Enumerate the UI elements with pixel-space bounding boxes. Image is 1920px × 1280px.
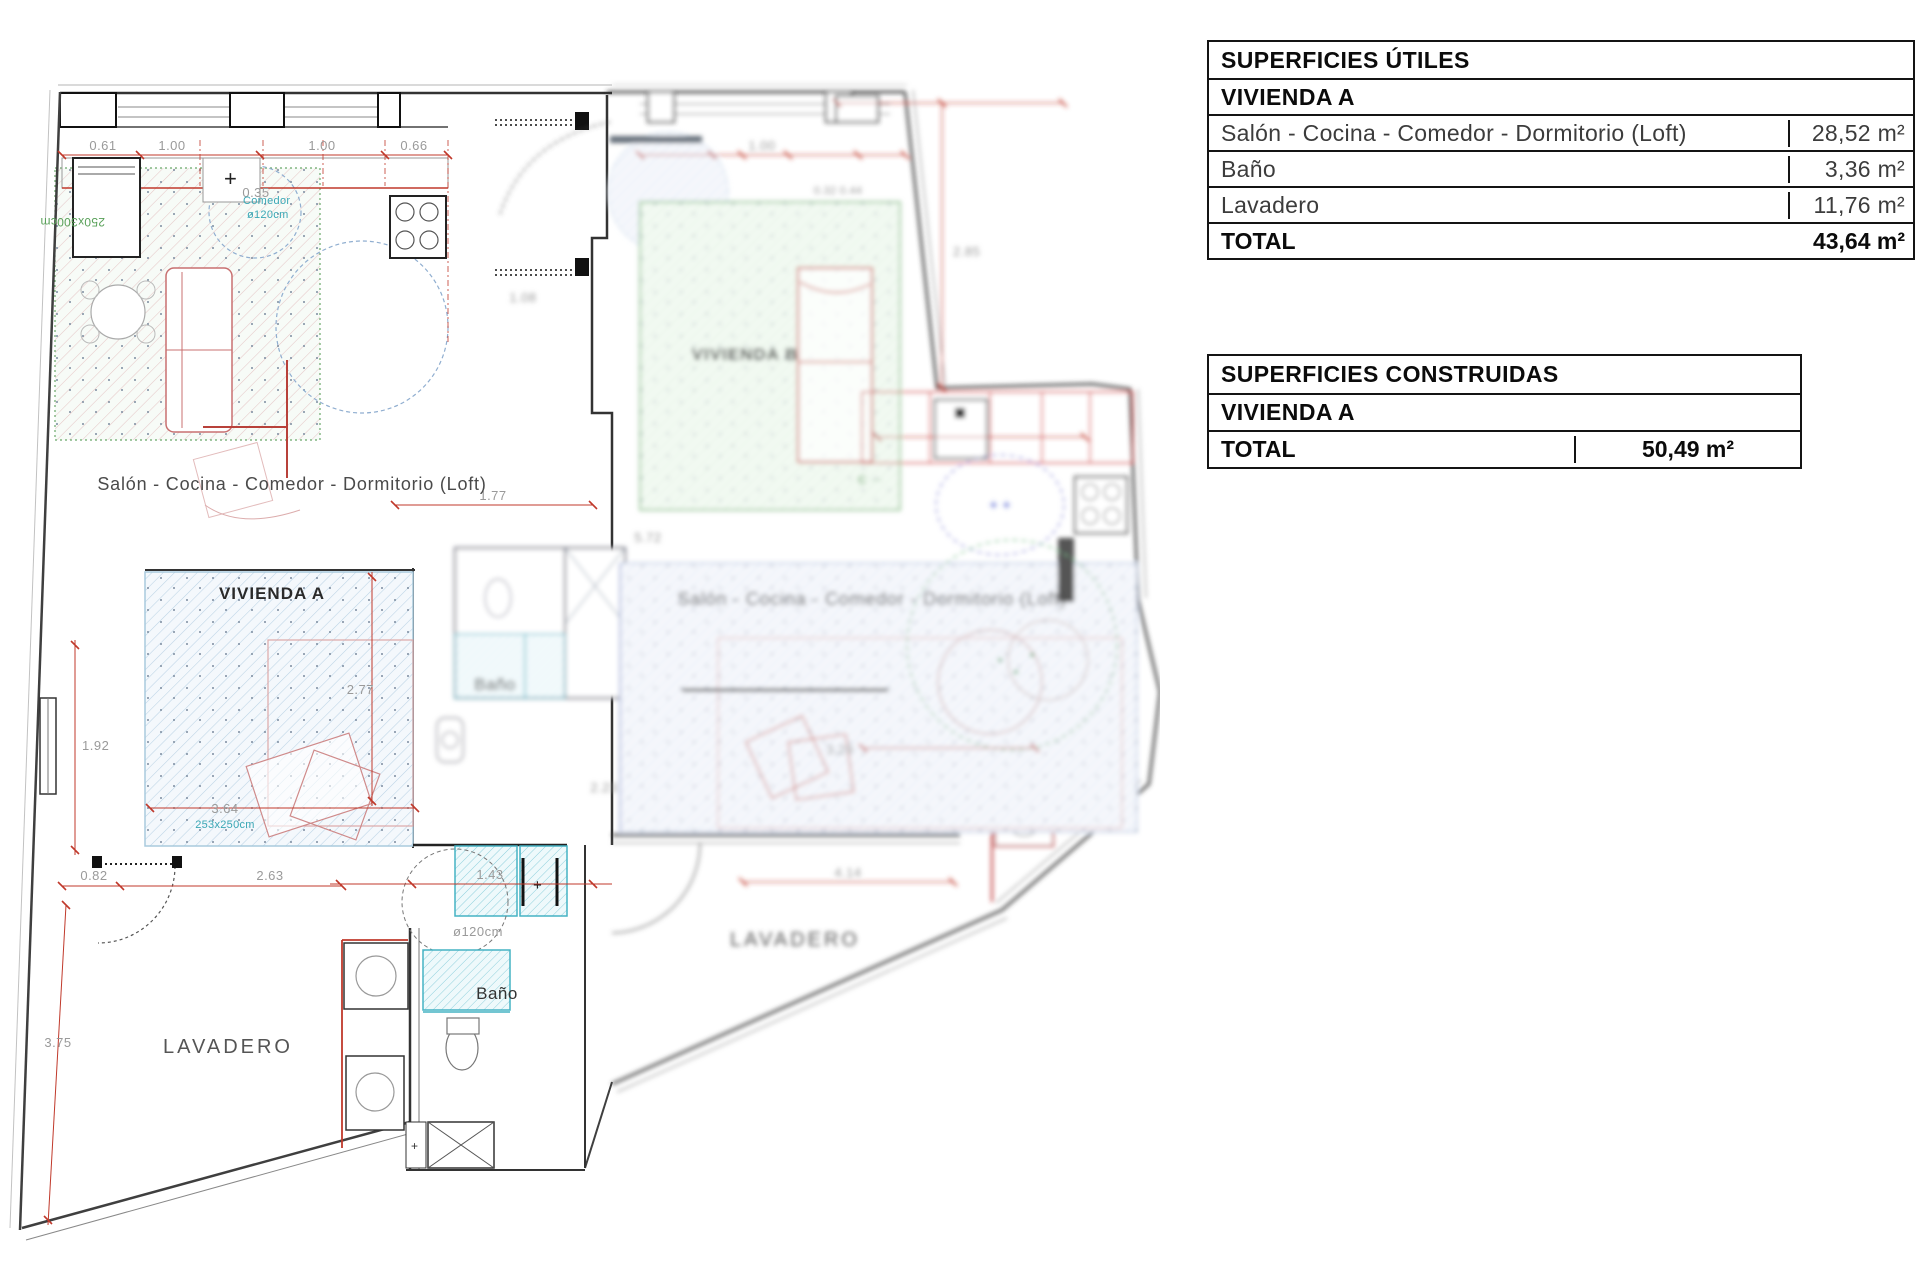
- dim-label: 1.08: [509, 290, 536, 305]
- dim-label: 3.75: [44, 1035, 71, 1050]
- area-value-cell: 28,52 m²: [1788, 120, 1913, 147]
- area-value-cell: 11,76 m²: [1788, 192, 1913, 219]
- table-subtitle-row: VIVIENDA A: [1209, 393, 1800, 430]
- left-wall: [20, 92, 60, 1230]
- table-row: Lavadero 11,76 m²: [1209, 186, 1913, 222]
- table-total-row: TOTAL 50,49 m²: [1209, 430, 1800, 467]
- room-name-cell: Baño: [1209, 156, 1788, 183]
- svg-text:+: +: [224, 166, 237, 191]
- wall-pillar: [230, 93, 284, 127]
- bed-size-label: 250x300cm: [40, 215, 105, 229]
- area-value-cell: 3,36 m²: [1788, 156, 1913, 183]
- room-label-bano-mid: Baño: [474, 675, 516, 694]
- dim-label: 4.14: [834, 865, 861, 880]
- svg-text:+: +: [411, 1139, 418, 1153]
- table-subtitle: VIVIENDA A: [1221, 84, 1355, 111]
- room-label-vivienda-a: VIVIENDA A: [219, 584, 325, 603]
- dim-label: 2.63: [256, 868, 283, 883]
- dim-label: 5.72: [634, 530, 661, 545]
- bed-b: [798, 268, 872, 462]
- floorplan-page: +: [0, 0, 1920, 1280]
- dim-label: 2.23: [590, 780, 617, 795]
- room-label-lavadero-right: LAVADERO: [730, 929, 860, 951]
- total-value: 50,49 m²: [1574, 436, 1800, 463]
- cooktop-b: [1075, 477, 1127, 533]
- superficies-construidas-table: SUPERFICIES CONSTRUIDAS VIVIENDA A TOTAL…: [1207, 354, 1802, 469]
- room-label-bano: Baño: [476, 984, 518, 1003]
- plan-vivienda-b-group: + + 1.00 0.32 0.44 2.85 1.08 5.72 2.23: [437, 85, 1160, 1092]
- dim-label: 1.00: [748, 138, 775, 153]
- door-jamb: [575, 112, 589, 130]
- room-name-cell: Lavadero: [1209, 192, 1788, 219]
- table-row: Baño 3,36 m²: [1209, 150, 1913, 186]
- table-subtitle: VIVIENDA A: [1221, 399, 1355, 426]
- dim-label: 0.82: [80, 868, 107, 883]
- dim-label: 3.29: [826, 742, 853, 757]
- table-title: SUPERFICIES CONSTRUIDAS: [1221, 361, 1559, 388]
- table-row: Salón - Cocina - Comedor - Dormitorio (L…: [1209, 114, 1913, 150]
- comedor-label: Comedor: [243, 195, 290, 207]
- dim-label: 1.43: [476, 867, 503, 882]
- comedor-diameter-label: ø120cm: [247, 209, 289, 221]
- room-label-vivienda-b: VIVIENDA B: [692, 345, 799, 364]
- dim-label: 0.32 0.44: [814, 185, 863, 197]
- floorplan-drawing: +: [0, 0, 1160, 1280]
- table-title: SUPERFICIES ÚTILES: [1221, 47, 1470, 74]
- dim-label: 0.61: [89, 138, 116, 153]
- door-arc: [98, 866, 175, 943]
- dim-label: 1.00: [158, 138, 185, 153]
- kitchen-fridge: [73, 158, 140, 257]
- superficies-utiles-table: SUPERFICIES ÚTILES VIVIENDA A Salón - Co…: [1207, 40, 1915, 260]
- room-label-salon-b: Salón - Cocina - Comedor - Dormitorio (L…: [677, 589, 1066, 609]
- dim-label: 1.92: [82, 738, 109, 753]
- table-title-row: SUPERFICIES CONSTRUIDAS: [1209, 356, 1800, 393]
- wall-pillar: [60, 93, 116, 127]
- dim-label: 0.66: [400, 138, 427, 153]
- door-jamb: [575, 258, 589, 276]
- total-label: TOTAL: [1209, 228, 1775, 255]
- shower-diameter-label: ø120cm: [453, 924, 503, 939]
- dim-label: 2.85: [953, 244, 980, 259]
- dim-label: 2.77: [347, 682, 374, 697]
- room-label-lavadero: LAVADERO: [163, 1036, 293, 1058]
- room-name-cell: Salón - Cocina - Comedor - Dormitorio (L…: [1209, 120, 1788, 147]
- table-subtitle-row: VIVIENDA A: [1209, 78, 1913, 114]
- table-title-row: SUPERFICIES ÚTILES: [1209, 42, 1913, 78]
- dim-label: 3.64: [211, 801, 238, 816]
- party-wall: [592, 95, 612, 845]
- round-table: [91, 285, 145, 339]
- washing-machine: [344, 943, 408, 1009]
- room-label-salon-a: Salón - Cocina - Comedor - Dormitorio (L…: [97, 474, 486, 494]
- green-mark: Є ⋯: [858, 473, 883, 487]
- washing-machine: [346, 1056, 404, 1130]
- svg-text:+ +: + +: [989, 497, 1011, 514]
- dim-label: 1.00: [308, 138, 335, 153]
- total-value: 43,64 m²: [1775, 228, 1913, 255]
- bed-size-label: 253x250cm: [195, 819, 255, 831]
- total-label: TOTAL: [1209, 436, 1574, 463]
- wall-pillar: [378, 93, 400, 127]
- table-total-row: TOTAL 43,64 m²: [1209, 222, 1913, 258]
- bottom-wall: [22, 1122, 410, 1228]
- svg-text:+: +: [533, 877, 542, 894]
